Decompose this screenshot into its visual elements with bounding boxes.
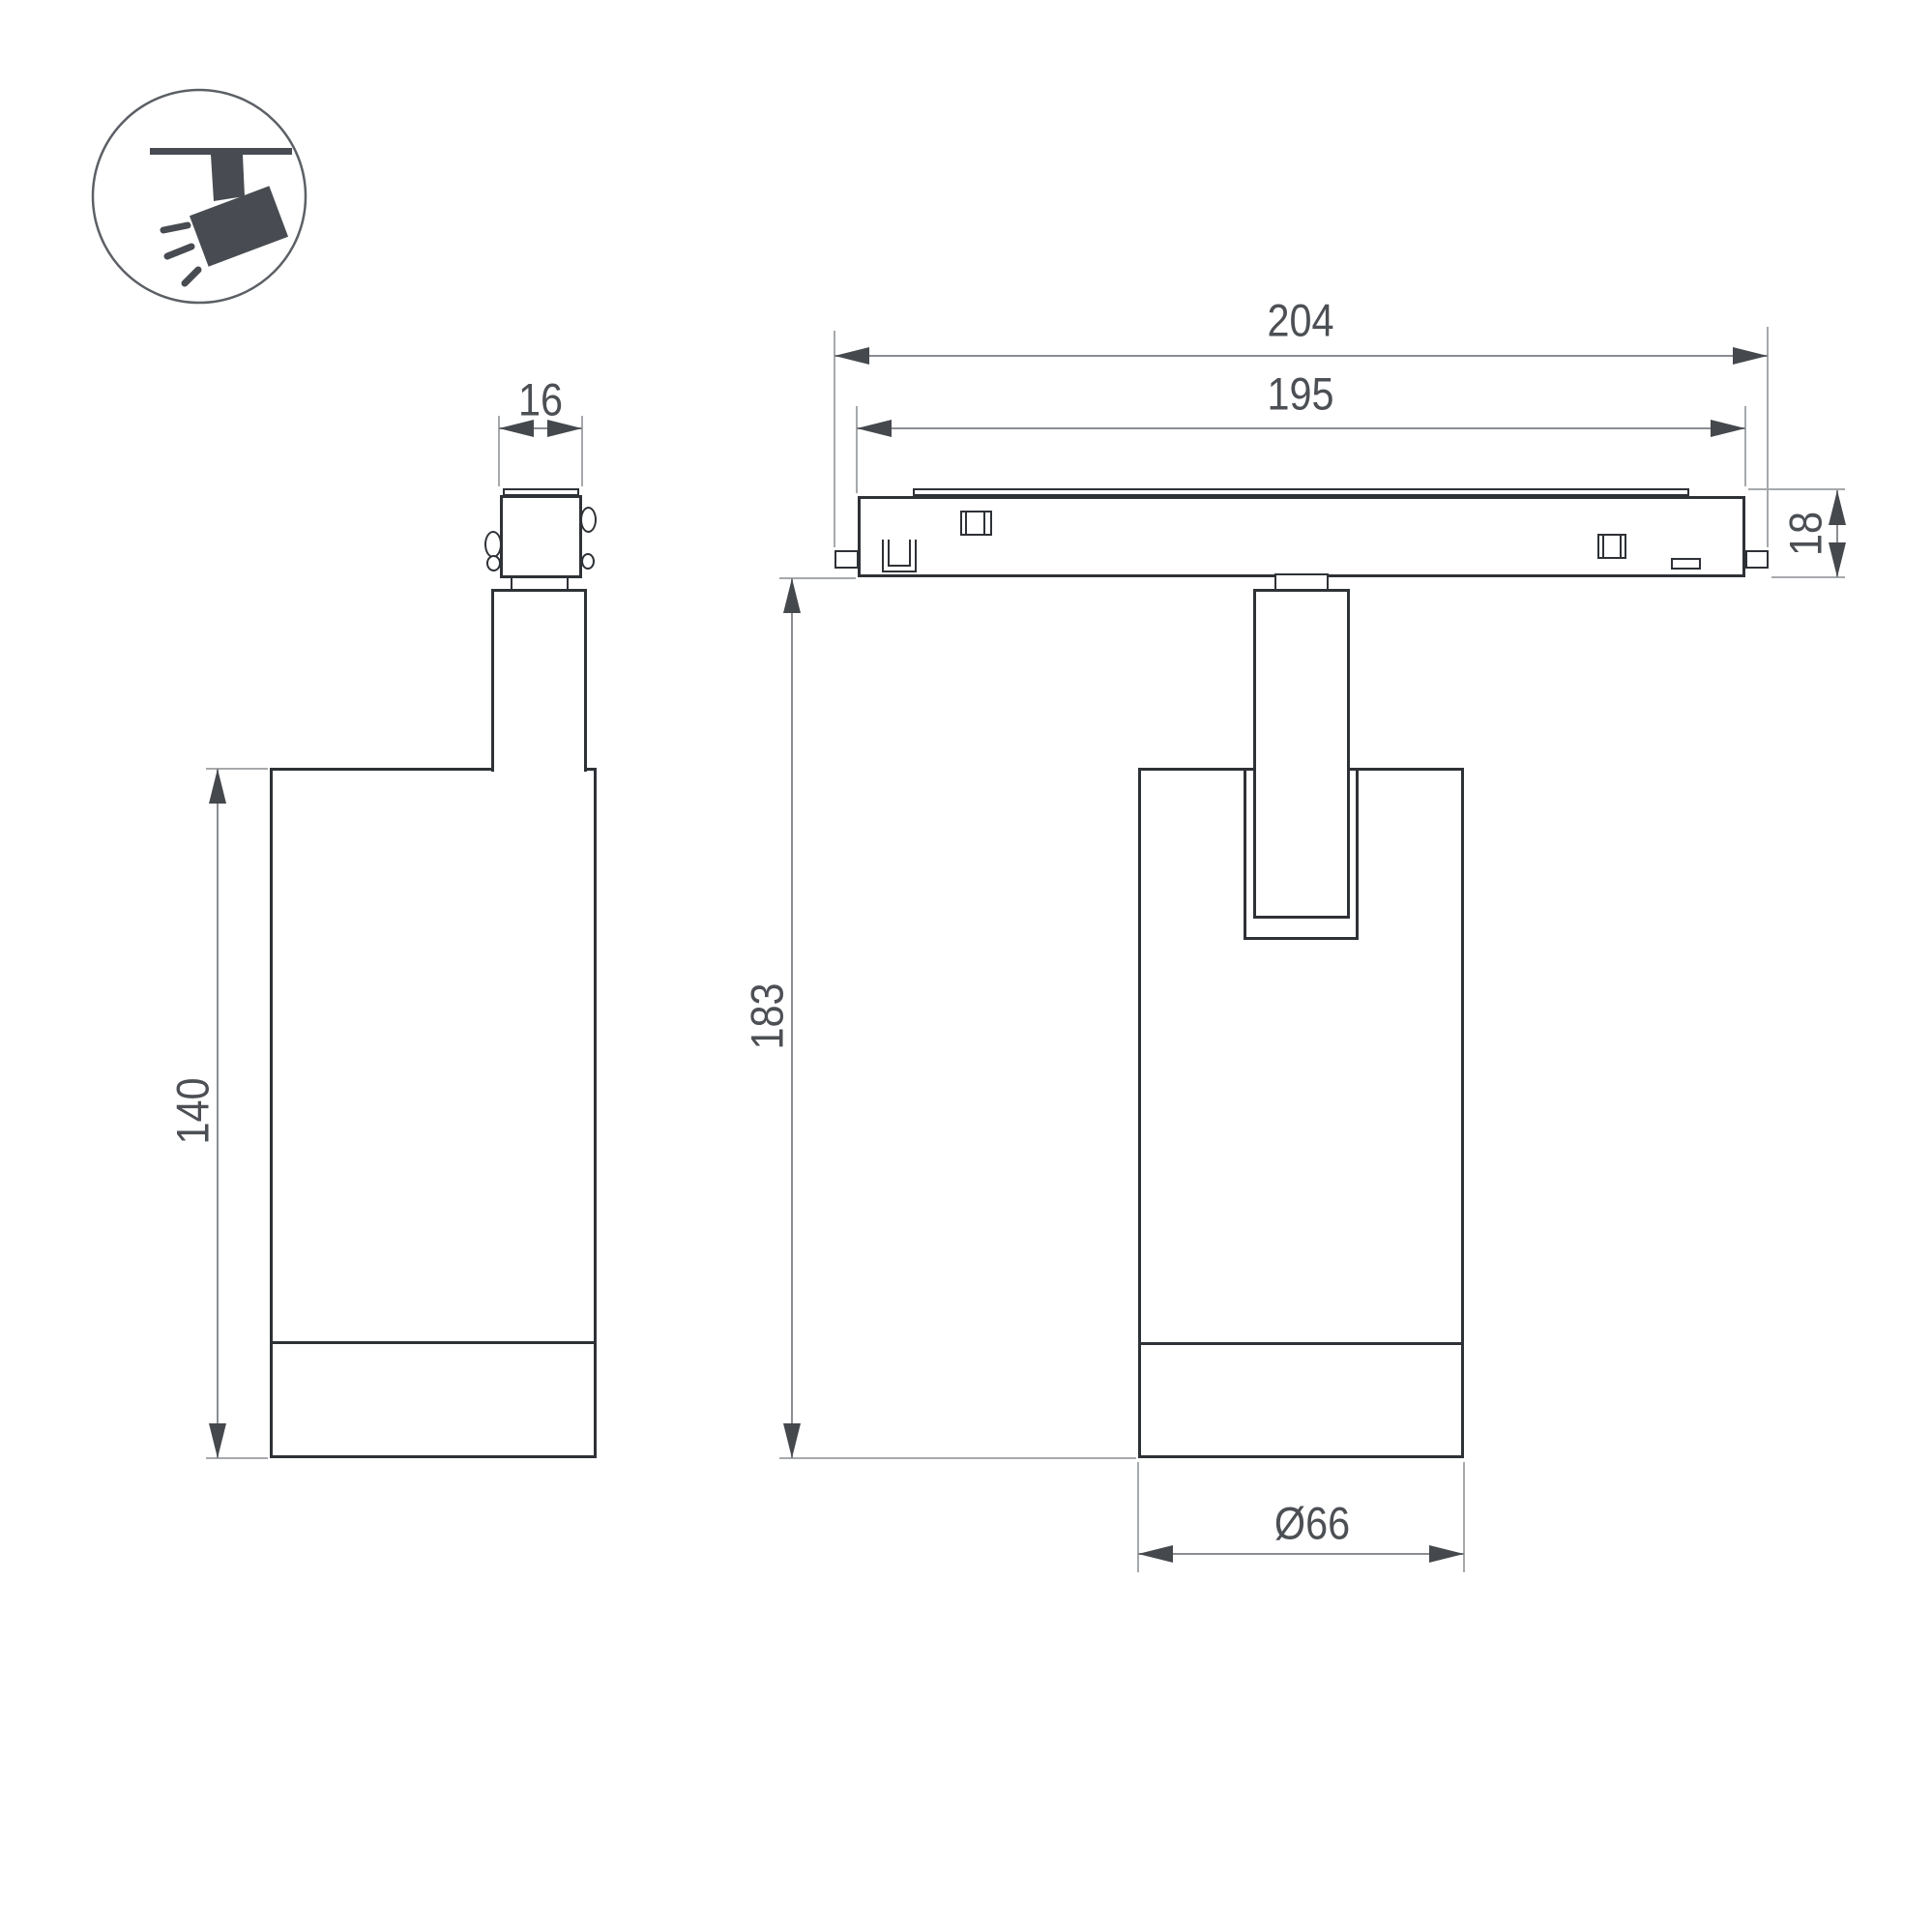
dim-195-line: [857, 427, 1745, 429]
front-track-window: [1671, 558, 1701, 570]
dim-195-label: 195: [1267, 367, 1333, 421]
icon-light-rays: [163, 225, 198, 283]
dim-66-label: Ø66: [1274, 1497, 1350, 1550]
front-track-end-lug-right: [1745, 550, 1769, 569]
dim-140-label: 140: [166, 1077, 220, 1144]
front-track-clip-inner: [888, 540, 911, 567]
side-body-divider: [272, 1341, 595, 1344]
dim-204-label: 204: [1267, 294, 1333, 347]
front-track-slot-left-inner: [965, 511, 985, 536]
dim-18-label: 18: [1779, 512, 1832, 556]
icon-ceiling-bar: [150, 148, 292, 155]
dim-16-label: 16: [518, 373, 563, 426]
side-connector-spring-right-small: [581, 553, 595, 570]
icon-mount-stem: [211, 155, 245, 201]
side-body: [270, 768, 597, 1458]
icon-lamp-body: [190, 186, 288, 266]
dimension-drawing-canvas: 16 140 204 195 18 183: [0, 0, 1932, 1932]
side-track-connector: [500, 495, 582, 578]
front-track-end-lug-left: [834, 550, 859, 569]
side-connector-spring-right-large: [580, 507, 597, 533]
front-track-top-plate: [913, 488, 1689, 496]
front-body-divider: [1140, 1342, 1462, 1345]
ceiling-spotlight-icon: [58, 55, 340, 337]
dim-204-line: [834, 355, 1768, 357]
dim-183-label: 183: [741, 982, 794, 1049]
front-track-slot-right-inner: [1602, 534, 1622, 559]
dim-66-line: [1138, 1553, 1464, 1555]
front-stem: [1253, 589, 1350, 919]
side-neck: [511, 578, 569, 589]
side-stem: [491, 589, 587, 772]
side-connector-spring-left-small: [486, 555, 501, 571]
front-neck: [1274, 573, 1329, 589]
